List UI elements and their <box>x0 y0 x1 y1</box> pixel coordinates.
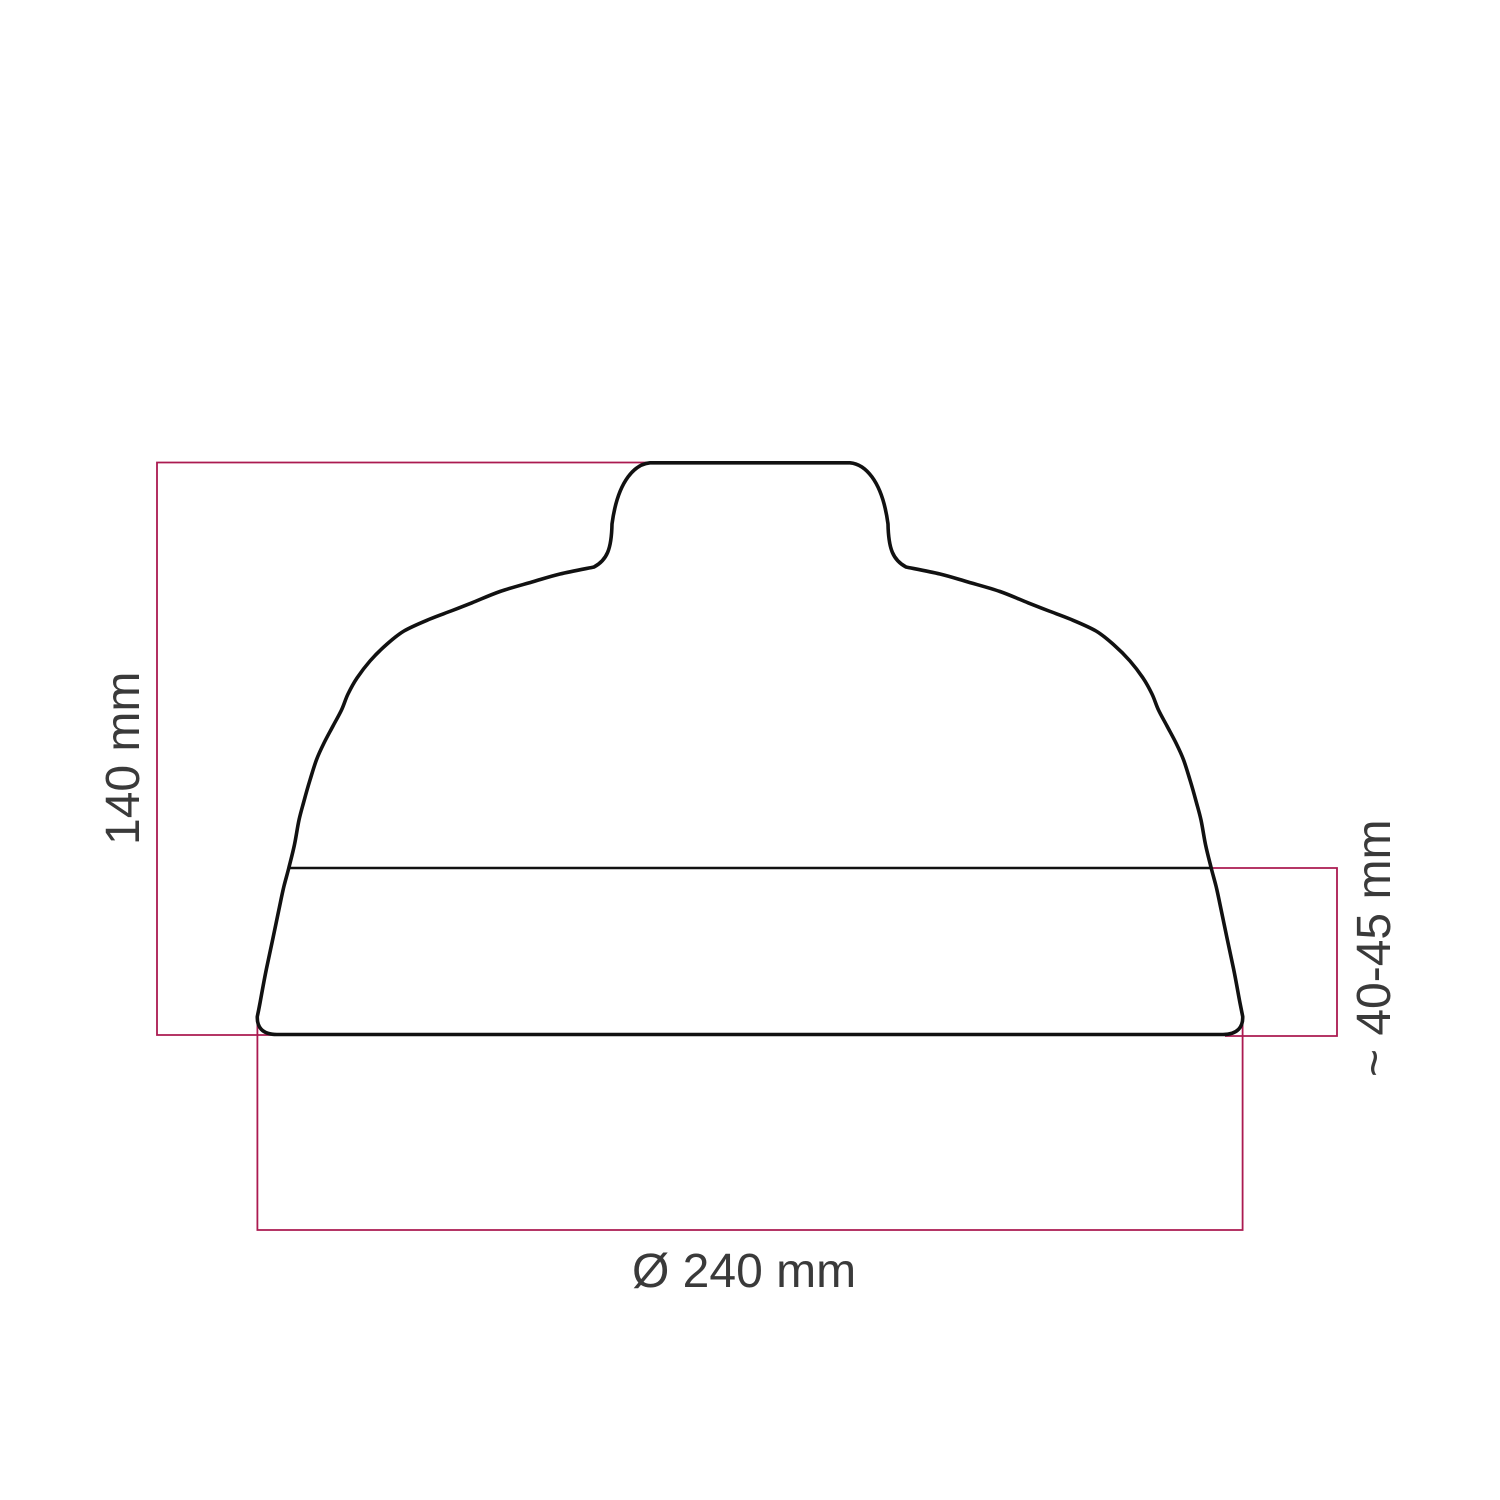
svg-text:Ø 240 mm: Ø 240 mm <box>632 1245 856 1298</box>
svg-text:140 mm: 140 mm <box>97 672 150 845</box>
svg-text:~ 40-45 mm: ~ 40-45 mm <box>1348 820 1401 1077</box>
